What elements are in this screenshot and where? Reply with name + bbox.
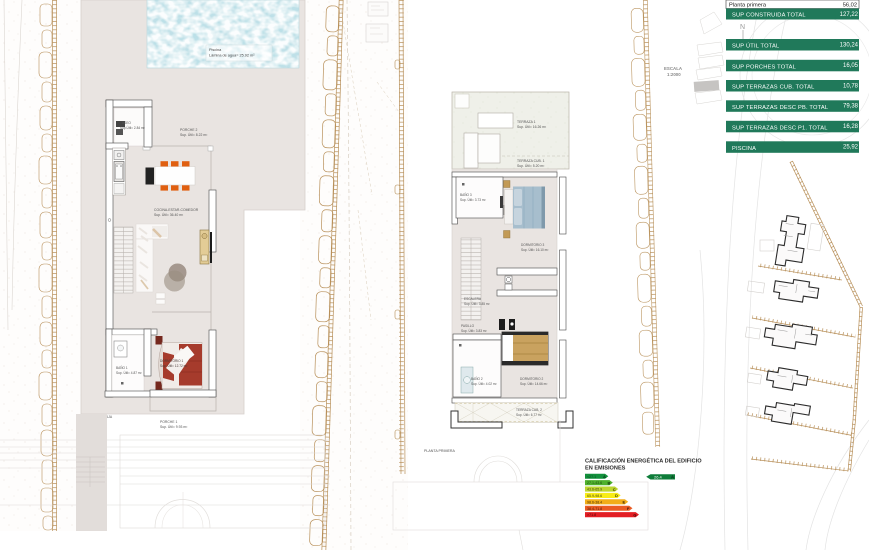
svg-text:E: E bbox=[623, 500, 626, 505]
svg-text:PORCHE 2: PORCHE 2 bbox=[180, 128, 197, 132]
svg-text:COCINA-ESTAR-COMEDOR: COCINA-ESTAR-COMEDOR bbox=[154, 208, 199, 212]
svg-text:Sup. Útil= 3.73 m²: Sup. Útil= 3.73 m² bbox=[460, 197, 486, 202]
svg-text:26.4: 26.4 bbox=[654, 475, 663, 480]
svg-text:G: G bbox=[633, 512, 636, 517]
svg-text:SUP TERRAZAS DESC PB. TOTAL: SUP TERRAZAS DESC PB. TOTAL bbox=[732, 105, 828, 111]
svg-text:Sup. Útil= 36.40 m²: Sup. Útil= 36.40 m² bbox=[154, 212, 184, 217]
svg-text:SUP ÚTIL TOTAL: SUP ÚTIL TOTAL bbox=[732, 43, 779, 50]
svg-text:BAÑO 3: BAÑO 3 bbox=[460, 192, 472, 197]
svg-text:DORMITORIO 2: DORMITORIO 2 bbox=[520, 377, 544, 381]
svg-text:N: N bbox=[740, 24, 745, 31]
svg-text:Sup. Útil= 12.72 m²: Sup. Útil= 12.72 m² bbox=[160, 363, 187, 368]
svg-text:DORMITORIO 3: DORMITORIO 3 bbox=[521, 243, 545, 247]
svg-text:PLANTA PRIMERA: PLANTA PRIMERA bbox=[424, 449, 455, 453]
svg-text:A: A bbox=[671, 475, 674, 480]
svg-text:10,78: 10,78 bbox=[843, 83, 859, 89]
svg-text:Piscina: Piscina bbox=[209, 48, 222, 52]
svg-text:25,92: 25,92 bbox=[843, 145, 859, 151]
svg-text:C: C bbox=[613, 487, 616, 492]
svg-text:TERRAZA CUB. 2: TERRAZA CUB. 2 bbox=[516, 408, 542, 412]
svg-text:SUP TERRAZAS CUB. TOTAL: SUP TERRAZAS CUB. TOTAL bbox=[732, 85, 814, 91]
svg-text:Sup. Útil= 16.26 m²: Sup. Útil= 16.26 m² bbox=[517, 124, 547, 129]
svg-text:TERRAZA CUB. 1: TERRAZA CUB. 1 bbox=[517, 159, 545, 163]
svg-text:BAÑO 2: BAÑO 2 bbox=[471, 376, 483, 381]
svg-text:Sup. Útil= 14.66 m²: Sup. Útil= 14.66 m² bbox=[520, 381, 547, 386]
svg-text:130,24: 130,24 bbox=[840, 42, 859, 48]
svg-text:Sup. Útil= 8.22 m²: Sup. Útil= 8.22 m² bbox=[180, 132, 208, 137]
svg-text:PASILLO: PASILLO bbox=[461, 324, 475, 328]
svg-text:27.1-43.6: 27.1-43.6 bbox=[587, 481, 602, 485]
svg-text:D: D bbox=[615, 493, 618, 498]
svg-text:EN EMISIONES: EN EMISIONES bbox=[585, 466, 626, 472]
svg-text:Sup. Útil= 9.93 m²: Sup. Útil= 9.93 m² bbox=[160, 424, 188, 429]
svg-text:127,22: 127,22 bbox=[840, 12, 859, 18]
svg-text:79,38: 79,38 bbox=[843, 104, 859, 110]
svg-text:43.6-65.9: 43.6-65.9 bbox=[587, 488, 602, 492]
svg-text:PORCHE 1: PORCHE 1 bbox=[160, 420, 177, 424]
svg-text:Planta primera: Planta primera bbox=[729, 2, 767, 8]
svg-text:CALIFICACIÓN ENERGÉTICA DEL ED: CALIFICACIÓN ENERGÉTICA DEL EDIFICIO bbox=[585, 457, 702, 465]
svg-text:38.4-71.8: 38.4-71.8 bbox=[587, 507, 602, 511]
svg-text:DORMITORIO 1: DORMITORIO 1 bbox=[160, 359, 184, 363]
svg-text:BAÑO 1: BAÑO 1 bbox=[116, 365, 128, 370]
svg-text:ESCALERA: ESCALERA bbox=[464, 297, 482, 301]
svg-text:ESCALA: ESCALA bbox=[664, 66, 683, 71]
svg-text:56,02: 56,02 bbox=[843, 2, 857, 8]
svg-text:Sup. Útil= 5.20 m²: Sup. Útil= 5.20 m² bbox=[517, 163, 545, 168]
svg-text:Sup. Útil= 3.85 m²: Sup. Útil= 3.85 m² bbox=[464, 301, 490, 306]
svg-text:<27.1: <27.1 bbox=[587, 475, 596, 479]
svg-text:16,28: 16,28 bbox=[843, 124, 859, 130]
svg-text:SUP PORCHES TOTAL: SUP PORCHES TOTAL bbox=[732, 64, 796, 70]
svg-text:Sup. Útil= 3.83 m²: Sup. Útil= 3.83 m² bbox=[461, 328, 487, 333]
svg-text:65.9-98.6: 65.9-98.6 bbox=[587, 494, 602, 498]
svg-text:Sup. Útil= 4.87 m²: Sup. Útil= 4.87 m² bbox=[116, 370, 142, 375]
svg-text:PISCINA: PISCINA bbox=[732, 146, 756, 152]
svg-text:1:2000: 1:2000 bbox=[667, 72, 681, 77]
svg-text:TERRAZA 1: TERRAZA 1 bbox=[517, 120, 536, 124]
svg-text:SUP TERRAZAS DESC P1. TOTAL: SUP TERRAZAS DESC P1. TOTAL bbox=[732, 125, 828, 131]
svg-text:B: B bbox=[608, 480, 611, 485]
svg-text:98.6-38.4: 98.6-38.4 bbox=[587, 500, 602, 504]
svg-text:Sup. Útil= 16.10 m²: Sup. Útil= 16.10 m² bbox=[521, 247, 548, 252]
svg-text:16,05: 16,05 bbox=[843, 63, 859, 69]
svg-text:Lámina de agua= 25.92 m²: Lámina de agua= 25.92 m² bbox=[209, 54, 255, 58]
svg-text:>71.8: >71.8 bbox=[587, 513, 596, 517]
svg-text:Sup.Útil= 2.84 m²: Sup.Útil= 2.84 m² bbox=[120, 125, 145, 130]
svg-text:A: A bbox=[603, 474, 606, 479]
svg-text:ASEO: ASEO bbox=[122, 121, 131, 125]
svg-text:Sup. Útil= 4.02 m²: Sup. Útil= 4.02 m² bbox=[471, 381, 497, 386]
svg-text:Sup. Útil= 6.77 m²: Sup. Útil= 6.77 m² bbox=[516, 412, 542, 417]
svg-text:SUP CONSTRUIDA TOTAL: SUP CONSTRUIDA TOTAL bbox=[732, 13, 806, 19]
